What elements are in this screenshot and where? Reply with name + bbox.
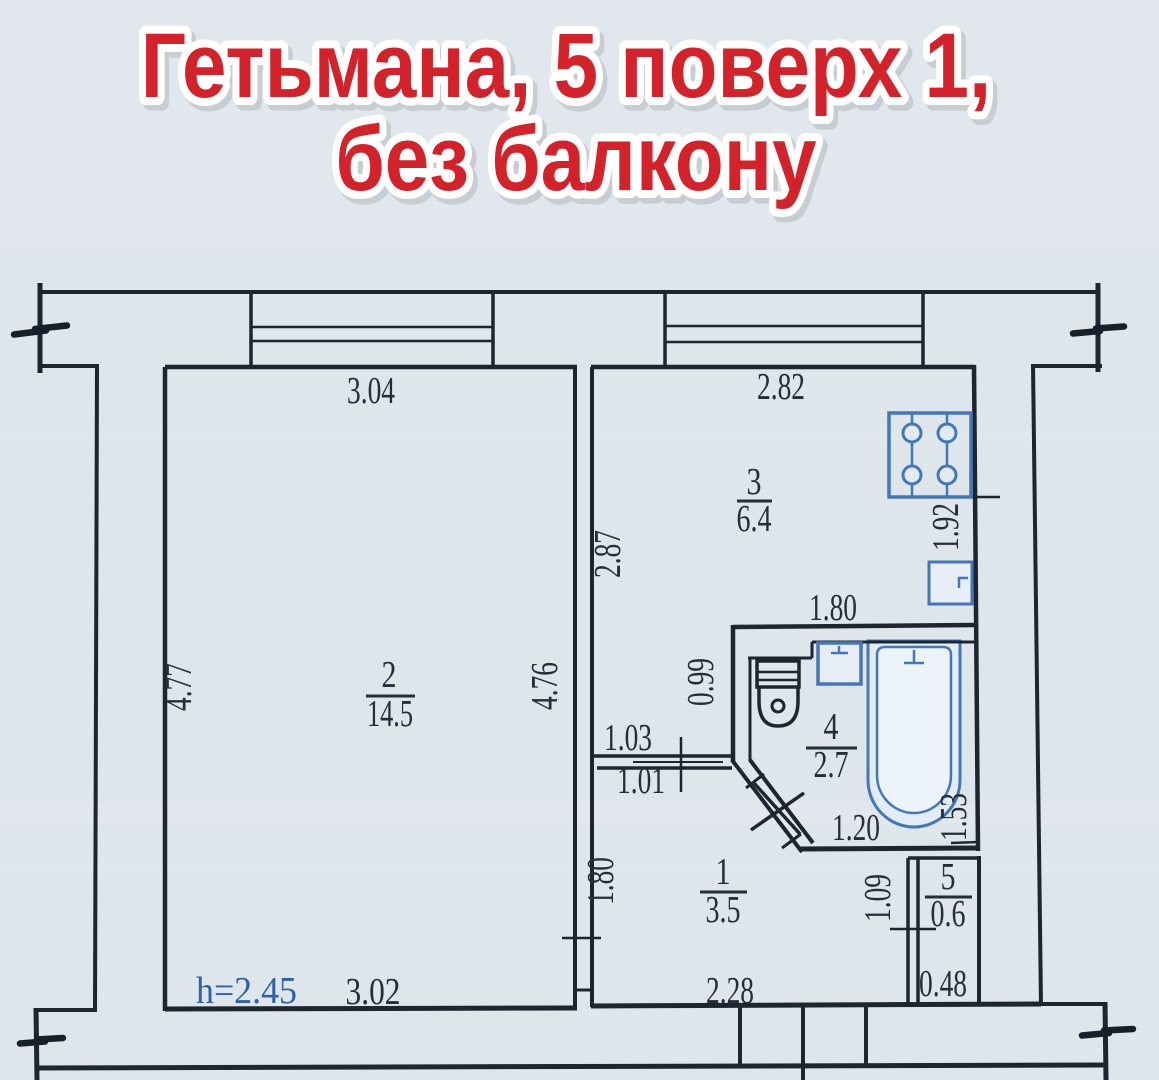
svg-text:3.5: 3.5 — [706, 889, 741, 931]
svg-text:1.53: 1.53 — [933, 793, 975, 841]
svg-text:1.03: 1.03 — [604, 717, 652, 759]
svg-text:Гетьмана, 5 поверх 1,: Гетьмана, 5 поверх 1, — [141, 15, 992, 117]
svg-text:без балкону: без балкону — [335, 108, 816, 210]
svg-text:4.76: 4.76 — [524, 662, 566, 710]
svg-text:4.77: 4.77 — [158, 663, 200, 711]
svg-text:1.09: 1.09 — [857, 874, 899, 922]
svg-text:4: 4 — [824, 706, 839, 748]
svg-text:0.48: 0.48 — [919, 963, 967, 1005]
svg-text:1: 1 — [716, 851, 731, 893]
svg-text:3.02: 3.02 — [346, 971, 401, 1013]
svg-text:5: 5 — [941, 856, 956, 898]
svg-text:14.5: 14.5 — [367, 693, 413, 735]
svg-text:1.80: 1.80 — [580, 857, 622, 905]
svg-text:2.87: 2.87 — [587, 530, 629, 578]
svg-text:h=2.45: h=2.45 — [196, 970, 297, 1012]
svg-text:1.20: 1.20 — [832, 807, 880, 849]
svg-text:2.82: 2.82 — [757, 366, 805, 408]
svg-text:6.4: 6.4 — [737, 498, 772, 540]
svg-text:1.80: 1.80 — [809, 587, 857, 629]
svg-text:0.6: 0.6 — [931, 893, 966, 935]
svg-text:1.92: 1.92 — [925, 503, 967, 551]
svg-text:0.99: 0.99 — [680, 658, 722, 706]
svg-text:2.28: 2.28 — [706, 970, 754, 1012]
svg-text:3: 3 — [747, 461, 762, 503]
svg-text:1.01: 1.01 — [617, 760, 665, 802]
svg-text:2.7: 2.7 — [814, 744, 849, 786]
svg-text:3.04: 3.04 — [347, 370, 395, 412]
svg-text:2: 2 — [382, 654, 397, 696]
